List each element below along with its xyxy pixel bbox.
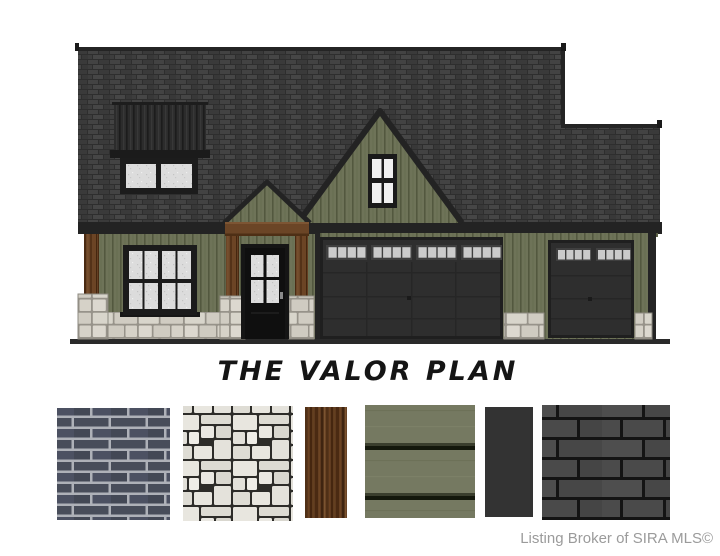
garage-door-single [548, 240, 634, 338]
swatch-lap-siding [365, 405, 475, 518]
swatch-shingles [542, 405, 670, 520]
swatch-trim [485, 407, 533, 517]
door-handle [280, 292, 283, 299]
garage-left-trim [315, 233, 320, 339]
plan-title: THE VALOR PLAN [218, 356, 519, 387]
garage-door-double [320, 237, 503, 339]
garage-right-pedestal [635, 313, 652, 339]
grade-line [70, 339, 670, 344]
house-elevation-rendering [0, 0, 720, 556]
garage-wing-roof [561, 120, 662, 223]
gable-window [368, 154, 397, 208]
swatch-brick [57, 408, 170, 520]
fascia-band [78, 222, 662, 234]
swatch-stone [183, 406, 293, 521]
material-swatches [57, 405, 670, 521]
garage-mid-pedestal [504, 313, 544, 339]
front-double-window [120, 245, 200, 317]
porch-header-beam [225, 222, 309, 236]
dormer-metal-awning [110, 102, 210, 158]
entry-door [241, 244, 289, 339]
garage-frieze [318, 233, 658, 237]
swatch-wood [305, 407, 347, 518]
listing-broker-credit: Listing Broker of SIRA MLS© [520, 530, 713, 547]
listing-photo-canvas: THE VALOR PLAN Listing Broker of SIRA ML… [0, 0, 720, 556]
dormer-window [120, 158, 198, 194]
